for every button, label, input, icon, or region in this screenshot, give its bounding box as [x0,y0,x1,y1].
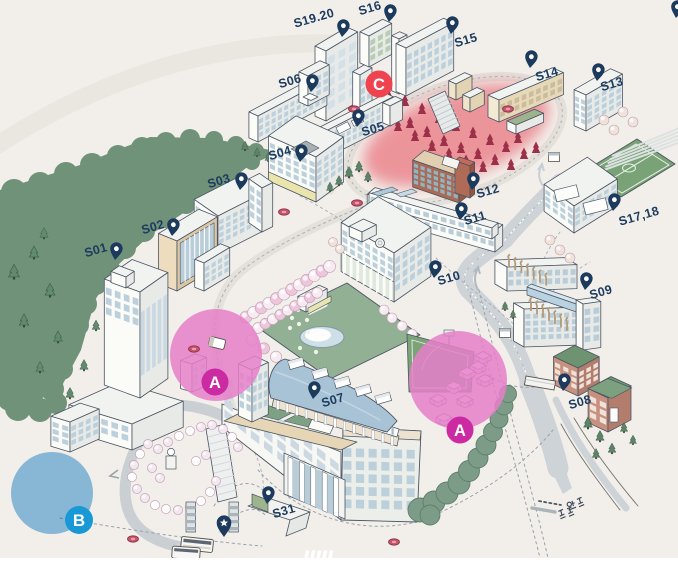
svg-text:C: C [373,76,385,94]
svg-text:A: A [209,374,221,392]
svg-text:B: B [73,511,85,530]
svg-text:A: A [454,422,466,440]
